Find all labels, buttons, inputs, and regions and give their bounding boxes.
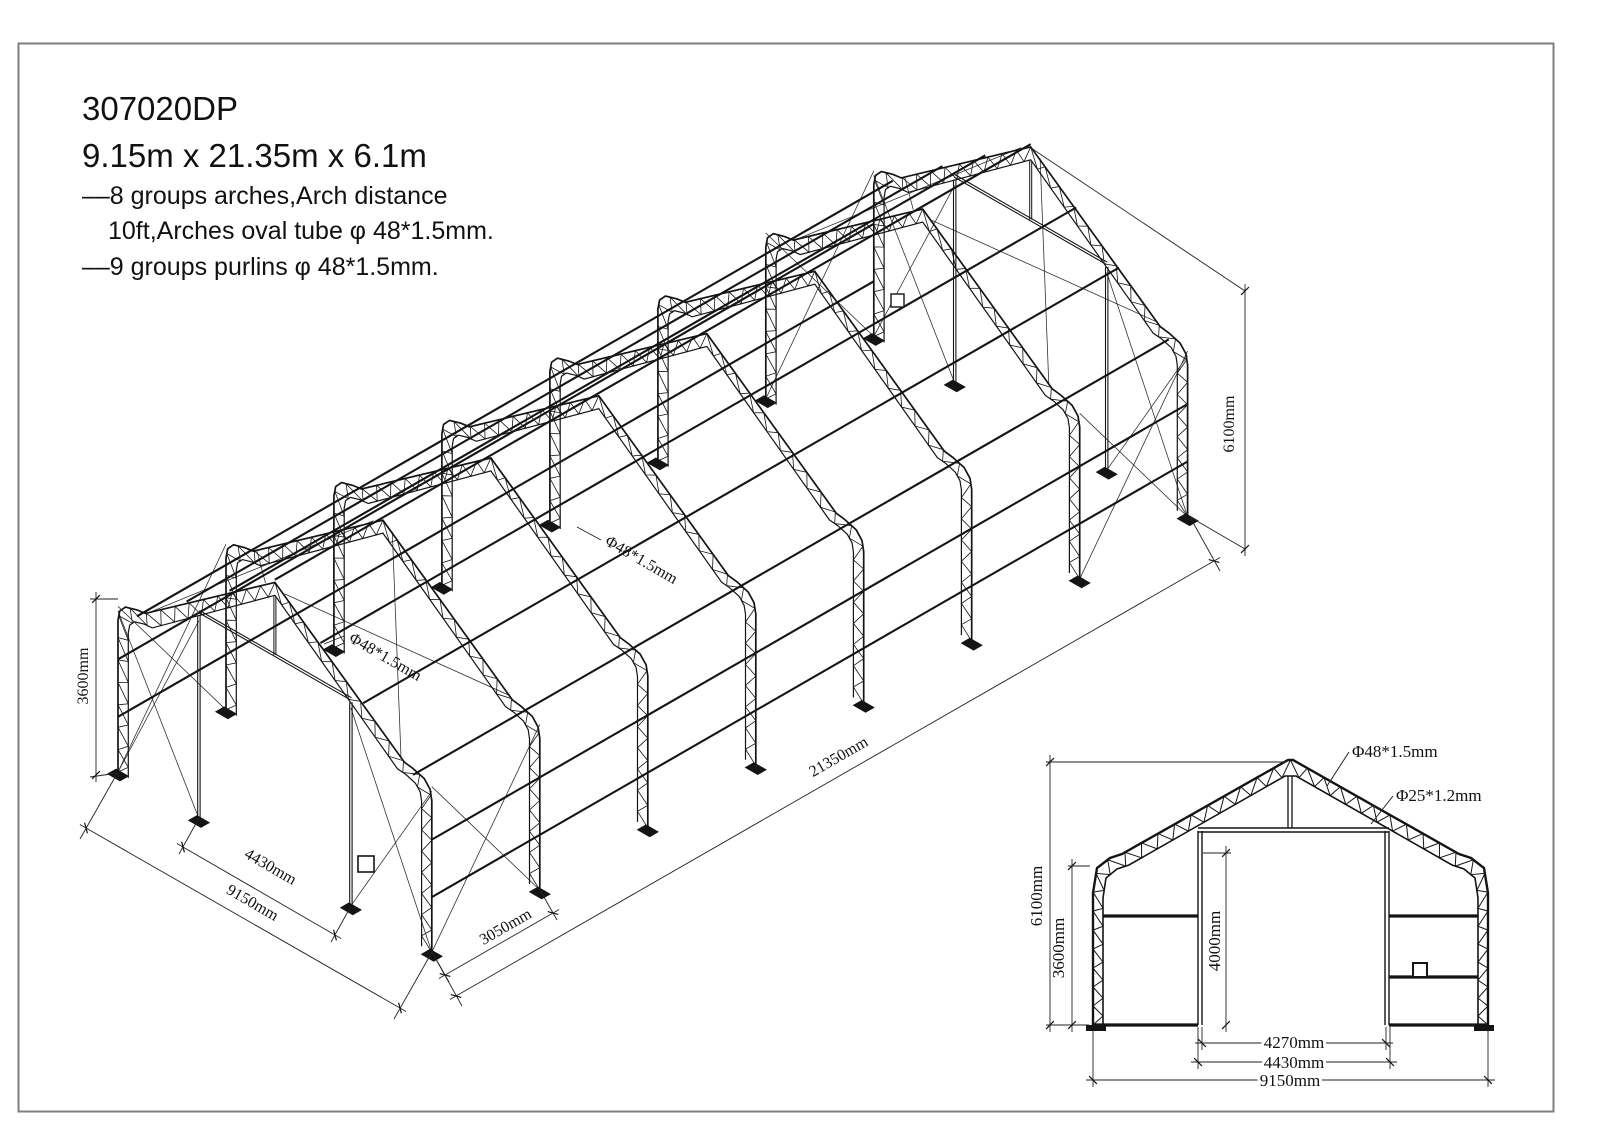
spec-arches: ––8 groups arches,Arch distance xyxy=(82,182,448,210)
spec-purlins: ––9 groups purlins φ 48*1.5mm. xyxy=(82,253,439,281)
fv-label-web-tube: Φ25*1.2mm xyxy=(1396,786,1482,805)
fv-dim-door-frame-width: 4430mm xyxy=(1264,1053,1324,1072)
fv-dim-eave-height: 3600mm xyxy=(1049,918,1068,978)
spec-arch-tube: 10ft,Arches oval tube φ 48*1.5mm. xyxy=(108,217,494,245)
iso-dim-eave-height: 3600mm xyxy=(75,647,92,704)
fv-dim-total-height: 6100mm xyxy=(1027,866,1046,926)
iso-dim-total-height: 6100mm xyxy=(1221,395,1238,452)
fv-dim-door-height: 4000mm xyxy=(1205,911,1224,971)
overall-size: 9.15m x 21.35m x 6.1m xyxy=(82,137,427,174)
model-number: 307020DP xyxy=(82,90,238,127)
fv-label-main-tube: Φ48*1.5mm xyxy=(1352,742,1438,761)
fv-dim-door-clear-width: 4270mm xyxy=(1264,1033,1324,1052)
fv-dim-total-width: 9150mm xyxy=(1260,1071,1320,1090)
technical-drawing: 307020DP 9.15m x 21.35m x 6.1m ––8 group… xyxy=(0,0,1600,1130)
